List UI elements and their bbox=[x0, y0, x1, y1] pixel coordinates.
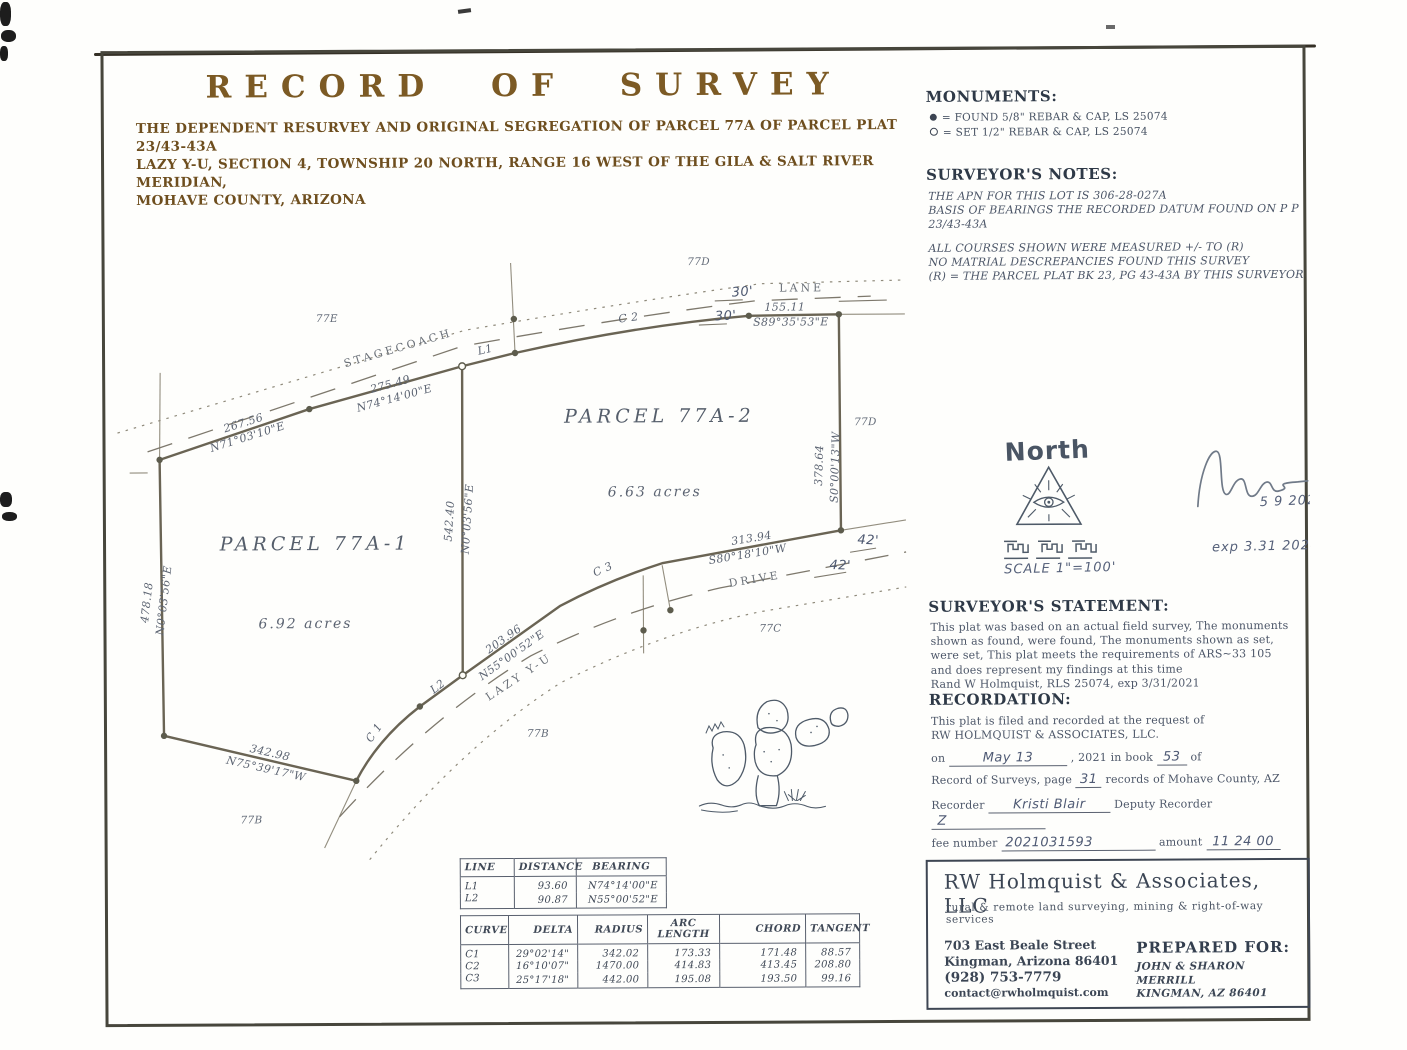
table-cell: 195.08 bbox=[648, 972, 720, 988]
table-cell: 171.48 bbox=[720, 943, 806, 960]
deputy-recorder-label: Deputy Recorder bbox=[1114, 797, 1212, 811]
table-cell: 29°02'14" bbox=[509, 944, 578, 961]
note-line: (R) = THE PARCEL PLAT BK 23, PG 43-43A B… bbox=[929, 268, 1309, 284]
table-cell: N74°14'00"E bbox=[576, 876, 666, 893]
mid-label: , 2021 in book bbox=[1071, 751, 1153, 764]
recorder-row: Recorder Kristi Blair Deputy Recorder Z bbox=[931, 796, 1311, 830]
table-cell: C1 bbox=[461, 945, 509, 962]
cactus-sketch-icon bbox=[699, 700, 849, 812]
prepared-for-block: PREPARED FOR: JOHN & SHARON MERRILL KING… bbox=[1136, 938, 1308, 1000]
prepared-for-heading: PREPARED FOR: bbox=[1136, 938, 1308, 957]
recorded-date-handwritten: May 13 bbox=[949, 751, 1067, 768]
page-title: RECORD OF SURVEY bbox=[194, 66, 854, 105]
subtitle-line-1: THE DEPENDENT RESURVEY AND ORIGINAL SEGR… bbox=[136, 116, 906, 156]
handwritten-42ft-lower: 42' bbox=[829, 558, 851, 574]
notes-heading: SURVEYOR'S NOTES: bbox=[926, 165, 1118, 184]
adjacent-77b-mid-label: 77B bbox=[527, 728, 549, 740]
road-stagecoach-label: STAGECOACH bbox=[342, 326, 454, 370]
table-cell: 442.00 bbox=[578, 972, 648, 988]
table-cell: 342.02 bbox=[578, 944, 648, 961]
firm-phone: (928) 753-7779 bbox=[944, 969, 1118, 986]
dim-542-distance: 542.40 bbox=[442, 500, 458, 542]
firm-tagline: rural & remote land surveying, mining & … bbox=[946, 900, 1308, 926]
table-cell: 208.80 bbox=[806, 959, 860, 971]
adjacent-77d-right-label: 77D bbox=[854, 416, 877, 428]
fee-row: fee number 2021031593 amount 11 24 00 bbox=[932, 834, 1312, 852]
dim-378-distance: 378.64 bbox=[812, 445, 826, 486]
table-cell: 99.16 bbox=[806, 971, 860, 987]
recordation-heading: RECORDATION: bbox=[929, 690, 1071, 709]
table-cell: N55°00'52"E bbox=[576, 892, 666, 908]
handwritten-42ft-upper: 42' bbox=[857, 533, 879, 549]
scan-artifact bbox=[458, 8, 471, 14]
survey-sheet-border: RECORD OF SURVEY THE DEPENDENT RESURVEY … bbox=[100, 45, 1310, 1027]
note-line: BASIS OF BEARINGS THE RECORDED DATUM FOU… bbox=[928, 202, 1308, 232]
table-cell: L1 bbox=[460, 877, 514, 894]
firm-address: 703 East Beale Street Kingman, Arizona 8… bbox=[944, 937, 1118, 1002]
adjacent-77e-label: 77E bbox=[316, 313, 338, 325]
fee-number-label: fee number bbox=[932, 836, 998, 849]
table-cell: 413.45 bbox=[720, 959, 806, 971]
north-arrow-and-signature: North SCALE 1"=100' 5 9 2021 exp 3.31 20… bbox=[939, 388, 1310, 580]
parcel-77a-1-boundary bbox=[159, 366, 464, 782]
scan-artifact bbox=[1106, 25, 1115, 29]
legend-set-monument: = SET 1/2" REBAR & CAP, LS 25074 bbox=[930, 126, 1148, 139]
legend-found-label: = FOUND 5/8" REBAR & CAP, LS 25074 bbox=[942, 111, 1168, 124]
plat-drawing: PARCEL 77A-2 6.63 acres PARCEL 77A-1 6.9… bbox=[107, 251, 912, 861]
north-label: North bbox=[1004, 435, 1090, 467]
table-cell: 1470.00 bbox=[578, 960, 648, 972]
road-lane-label: LANE bbox=[779, 281, 824, 294]
amount-handwritten: 11 24 00 bbox=[1206, 834, 1280, 850]
found-monument-icon bbox=[930, 114, 937, 121]
curve-ref-c3: C 3 bbox=[591, 559, 615, 579]
firm-title-block: RW Holmquist & Associates, LLC rural & r… bbox=[926, 858, 1311, 1010]
firm-street: 703 East Beale Street bbox=[944, 937, 1118, 954]
road-drive-label: DRIVE bbox=[728, 569, 782, 590]
subtitle-line-3: MOHAVE COUNTY, ARIZONA bbox=[136, 188, 906, 210]
table-cell: 25°17'18" bbox=[509, 973, 578, 989]
scan-artifact bbox=[0, 2, 11, 26]
table-cell: 16°10'07" bbox=[509, 961, 578, 973]
north-wave-motif-icon bbox=[1004, 541, 1096, 558]
recordation-line-2: RW HOLMQUIST & ASSOCIATES, LLC. bbox=[931, 727, 1311, 743]
line-ref-l1: L1 bbox=[475, 342, 494, 358]
signature-date: 5 9 2021 bbox=[1259, 492, 1310, 510]
curve-table-header: RADIUS bbox=[577, 915, 647, 944]
dim-478-bearing: N0°03'56"E bbox=[153, 565, 174, 637]
amount-label: amount bbox=[1159, 835, 1202, 848]
dim-155-bearing: S89°35'53"E bbox=[753, 315, 829, 328]
table-cell: 193.50 bbox=[720, 971, 806, 987]
survey-subtitle: THE DEPENDENT RESURVEY AND ORIGINAL SEGR… bbox=[136, 116, 906, 210]
scan-artifact bbox=[2, 512, 17, 521]
surveyor-notes: THE APN FOR THIS LOT IS 306-28-027A BASI… bbox=[928, 188, 1308, 284]
north-pyramid-eye-icon bbox=[1017, 467, 1081, 524]
curve-table-header: ARC LENGTH bbox=[647, 914, 719, 943]
line-table-header: DISTANCE bbox=[514, 858, 576, 876]
legend-set-label: = SET 1/2" REBAR & CAP, LS 25074 bbox=[943, 126, 1148, 139]
client-city: KINGMAN, AZ 86401 bbox=[1136, 987, 1308, 1000]
fee-number-handwritten: 2021031593 bbox=[1001, 835, 1155, 852]
book-number-handwritten: 53 bbox=[1157, 750, 1187, 766]
curve-table-header: CHORD bbox=[719, 914, 805, 943]
dim-155-distance: 155.11 bbox=[764, 300, 805, 313]
statement-line: Rand W Holmquist, RLS 25074, exp 3/31/20… bbox=[931, 676, 1311, 692]
legend-found-monument: = FOUND 5/8" REBAR & CAP, LS 25074 bbox=[930, 111, 1168, 124]
signature-exp-date: exp 3.31 2024 bbox=[1212, 538, 1310, 555]
monuments-heading: MONUMENTS: bbox=[926, 87, 1058, 106]
curve-ref-c2: C 2 bbox=[618, 310, 640, 325]
firm-email: contact@rwholmquist.com bbox=[944, 985, 1118, 1002]
client-name: JOHN & SHARON MERRILL bbox=[1136, 959, 1308, 988]
table-cell: 93.60 bbox=[514, 876, 576, 893]
subtitle-line-2: LAZY Y-U, SECTION 4, TOWNSHIP 20 NORTH, … bbox=[136, 152, 906, 192]
scanned-survey-page: { "page": { "title": "RECORD OF SURVEY",… bbox=[0, 0, 1407, 1050]
dim-478-distance: 478.18 bbox=[138, 581, 156, 624]
table-cell: 88.57 bbox=[806, 943, 860, 960]
curve-table-header: DELTA bbox=[508, 915, 577, 944]
curve-table-header: TANGENT bbox=[805, 914, 859, 943]
recordation-date-row: on May 13 , 2021 in book 53 of bbox=[931, 749, 1311, 767]
firm-city: Kingman, Arizona 86401 bbox=[944, 953, 1118, 970]
line-table-header: LINE bbox=[460, 859, 514, 877]
lazy-yu-drive-centerline bbox=[338, 552, 907, 817]
set-monument-icon bbox=[930, 128, 938, 136]
scan-artifact bbox=[1, 30, 16, 42]
recordation-page-row: Record of Surveys, page 31 records of Mo… bbox=[931, 771, 1311, 789]
deputy-recorder-handwritten: Z bbox=[931, 813, 1045, 830]
table-cell: 414.83 bbox=[648, 960, 720, 972]
table-cell: C2 bbox=[461, 961, 509, 973]
recordation-block: This plat is filed and recorded at the r… bbox=[931, 713, 1311, 789]
table-cell: 173.33 bbox=[648, 943, 720, 960]
adjacent-77d-top-label: 77D bbox=[687, 256, 710, 268]
handwritten-30ft-lower: 30' bbox=[714, 308, 736, 324]
dim-378-bearing: S0°00'13"W bbox=[828, 430, 843, 503]
handwritten-30ft-upper: 30' bbox=[731, 284, 754, 301]
recorder-name-handwritten: Kristi Blair bbox=[988, 797, 1110, 814]
parcel-77a-1-area: 6.92 acres bbox=[258, 616, 352, 632]
road-lazy-yu-label: LAZY Y-U bbox=[483, 651, 554, 704]
of-label: of bbox=[1190, 751, 1201, 764]
parcel-77a-2-area: 6.63 acres bbox=[608, 484, 702, 500]
line-table-header: BEARING bbox=[576, 858, 666, 876]
parcel-77a-2-label: PARCEL 77A-2 bbox=[563, 405, 755, 428]
parcel-77a-1-label: PARCEL 77A-1 bbox=[219, 533, 411, 556]
statement-line: were set, This plat meets the requiremen… bbox=[931, 647, 1311, 663]
recorder-label: Recorder bbox=[931, 799, 984, 812]
records-label: records of Mohave County, AZ bbox=[1105, 772, 1280, 786]
line-table: LINE DISTANCE BEARING L1 93.60 N74°14'00… bbox=[460, 857, 667, 909]
page-label: Record of Surveys, page bbox=[931, 773, 1072, 787]
adjacent-77c-label: 77C bbox=[759, 623, 781, 635]
statement-heading: SURVEYOR'S STATEMENT: bbox=[928, 597, 1169, 616]
surveyor-statement: This plat was based on an actual field s… bbox=[930, 619, 1310, 692]
scale-note: SCALE 1"=100' bbox=[1004, 560, 1117, 578]
table-cell: 90.87 bbox=[514, 893, 576, 909]
page-number-handwritten: 31 bbox=[1076, 772, 1102, 788]
curve-table: CURVE DELTA RADIUS ARC LENGTH CHORD TANG… bbox=[460, 913, 860, 989]
line-ref-l2: L2 bbox=[427, 677, 448, 697]
table-cell: C3 bbox=[461, 973, 509, 989]
adjacent-77b-left-label: 77B bbox=[240, 814, 262, 826]
curve-table-header: CURVE bbox=[460, 916, 508, 945]
table-cell: L2 bbox=[460, 893, 514, 909]
on-label: on bbox=[931, 752, 945, 765]
scan-artifact bbox=[0, 492, 12, 507]
scan-artifact bbox=[0, 46, 8, 61]
